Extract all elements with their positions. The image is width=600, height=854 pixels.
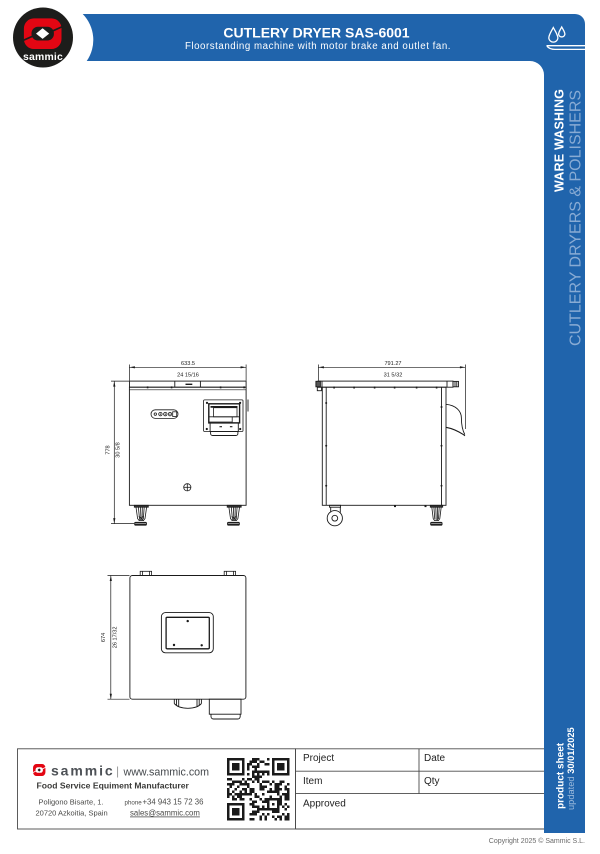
svg-text:+34 943 15 72 36: +34 943 15 72 36 (143, 798, 204, 807)
svg-text:Copyright 2025 © Sammic S.L.: Copyright 2025 © Sammic S.L. (489, 837, 585, 845)
svg-text:Date: Date (424, 753, 446, 764)
svg-text:phone: phone (125, 800, 143, 807)
svg-text:sammic: sammic (23, 52, 63, 63)
svg-text:sales@sammic.com: sales@sammic.com (130, 809, 200, 818)
svg-text:633.5: 633.5 (181, 361, 195, 367)
svg-text:Item: Item (303, 776, 322, 787)
svg-text:674: 674 (101, 633, 107, 642)
svg-text:Food Service Equiment Manufact: Food Service Equiment Manufacturer (37, 781, 190, 791)
svg-text:sammic: sammic (51, 763, 115, 779)
svg-text:Qty: Qty (424, 776, 440, 787)
svg-text:Project: Project (303, 753, 334, 764)
svg-text:Floorstanding machine with mot: Floorstanding machine with motor brake a… (185, 41, 451, 52)
svg-text:31 5/32: 31 5/32 (384, 372, 403, 378)
svg-text:CUTLERY DRYERS & POLISHERS: CUTLERY DRYERS & POLISHERS (568, 90, 585, 346)
svg-text:|: | (116, 764, 119, 778)
svg-text:Poligono Bisarte, 1.: Poligono Bisarte, 1. (39, 798, 104, 807)
svg-text:www.sammic.com: www.sammic.com (123, 767, 210, 779)
svg-text:Approved: Approved (303, 799, 346, 810)
svg-text:26 17/32: 26 17/32 (113, 627, 119, 649)
svg-text:product sheet: product sheet (556, 742, 567, 809)
svg-text:791.27: 791.27 (384, 361, 401, 367)
svg-text:30 5/8: 30 5/8 (116, 442, 122, 458)
svg-text:778: 778 (106, 445, 112, 454)
svg-text:updated 30/01/2025: updated 30/01/2025 (566, 727, 576, 810)
svg-text:20720 Azkoitia, Spain: 20720 Azkoitia, Spain (36, 809, 108, 818)
svg-text:CUTLERY DRYER SAS-6001: CUTLERY DRYER SAS-6001 (223, 24, 409, 40)
svg-text:WARE WASHING: WARE WASHING (553, 89, 567, 192)
svg-text:24 15/16: 24 15/16 (177, 372, 199, 378)
